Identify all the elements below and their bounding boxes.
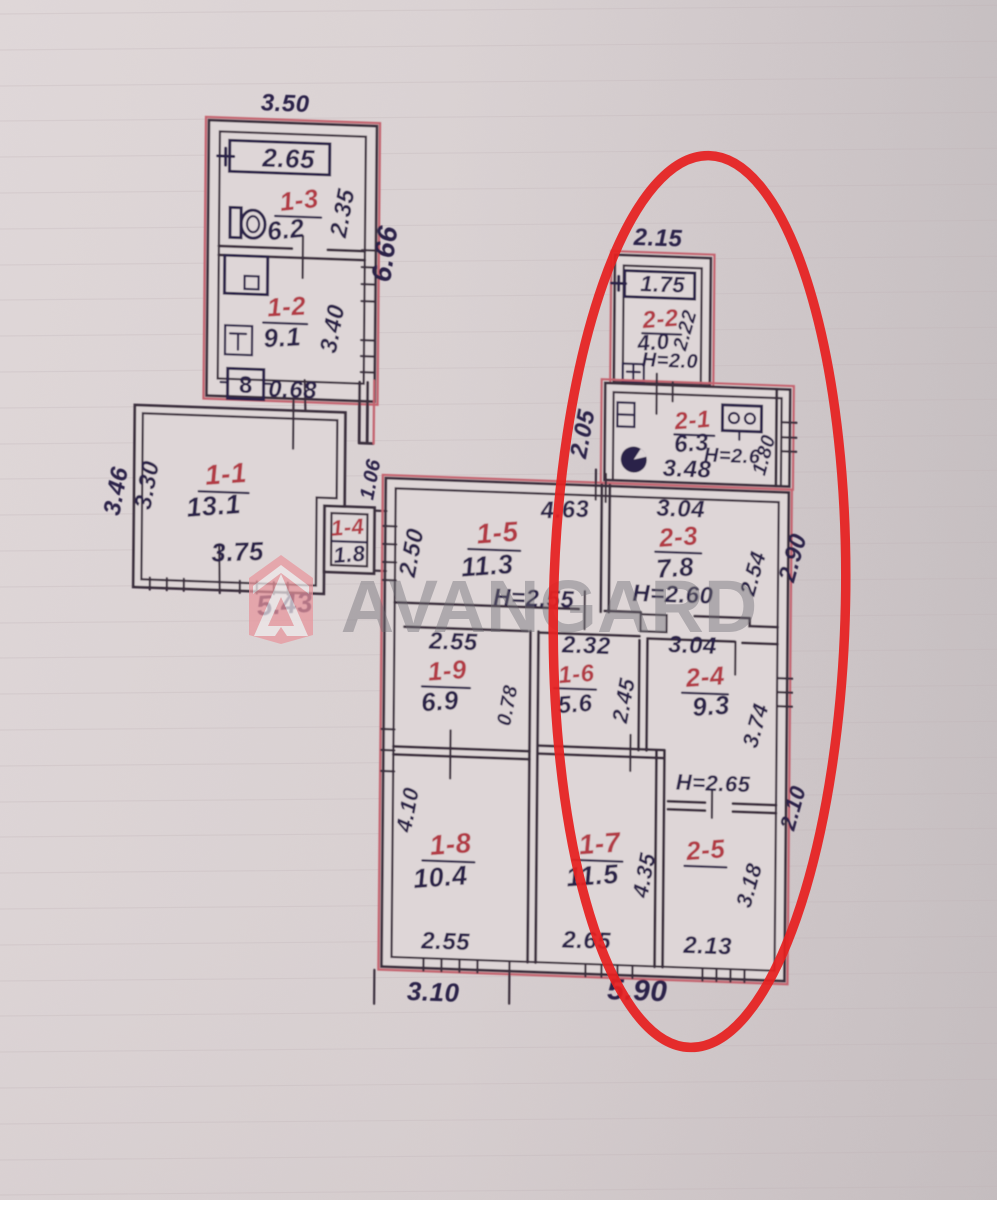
svg-text:5.6: 5.6	[556, 690, 593, 719]
svg-text:3.75: 3.75	[210, 536, 264, 568]
svg-text:6.9: 6.9	[420, 685, 460, 718]
svg-text:2.55: 2.55	[420, 927, 470, 956]
svg-text:2.13: 2.13	[682, 932, 732, 961]
svg-text:1-9: 1-9	[426, 654, 468, 687]
svg-text:2-4: 2-4	[683, 660, 726, 693]
svg-text:13.1: 13.1	[185, 489, 242, 523]
svg-text:9.3: 9.3	[691, 690, 731, 723]
svg-text:9.1: 9.1	[262, 321, 302, 353]
svg-text:1-5: 1-5	[475, 516, 520, 550]
svg-text:2-3: 2-3	[657, 520, 700, 553]
svg-text:2.15: 2.15	[633, 224, 683, 253]
svg-text:1.75: 1.75	[640, 271, 685, 298]
svg-text:1-6: 1-6	[557, 660, 596, 689]
svg-text:1-7: 1-7	[577, 826, 623, 860]
svg-text:1.8: 1.8	[332, 541, 367, 568]
svg-text:H=2.0: H=2.0	[642, 349, 699, 373]
svg-text:1-8: 1-8	[428, 827, 473, 861]
svg-text:8: 8	[239, 372, 253, 399]
svg-text:1-1: 1-1	[203, 457, 248, 491]
svg-text:2-5: 2-5	[684, 833, 727, 866]
svg-text:1-3: 1-3	[278, 183, 321, 217]
svg-text:3.50: 3.50	[261, 89, 310, 118]
svg-text:2.65: 2.65	[261, 142, 315, 174]
svg-text:H=2.65: H=2.65	[676, 770, 751, 798]
svg-text:1-4: 1-4	[330, 514, 366, 541]
svg-text:10.4: 10.4	[412, 860, 469, 894]
svg-text:1-2: 1-2	[266, 290, 307, 322]
svg-text:4.63: 4.63	[539, 496, 590, 525]
svg-text:3.10: 3.10	[407, 976, 460, 1008]
svg-text:3.48: 3.48	[663, 455, 712, 484]
svg-text:3.04: 3.04	[656, 495, 705, 524]
svg-text:6.2: 6.2	[265, 213, 306, 247]
